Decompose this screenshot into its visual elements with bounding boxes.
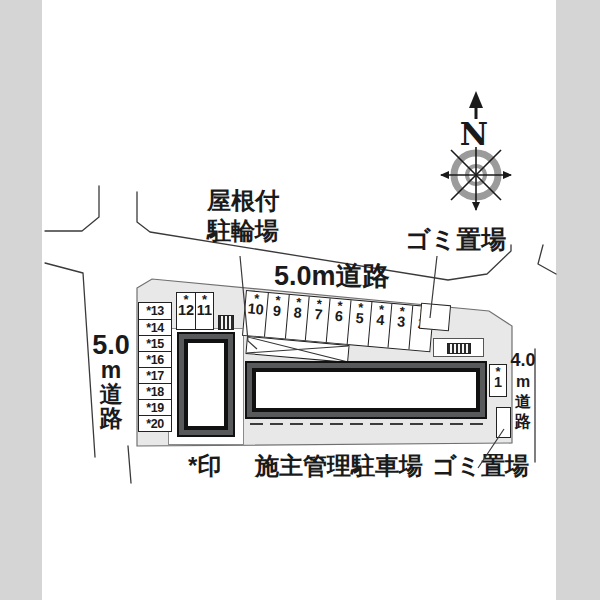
road-east-char: m (509, 372, 537, 392)
road-edge-line (45, 186, 99, 231)
road-east-char: 路 (509, 412, 537, 432)
parking-stall-1-cell: * 1 (490, 365, 506, 396)
owner-mark: * (202, 293, 207, 302)
owner-mark: * (495, 365, 500, 374)
bicycle-parking-label-line2: 駐輪場 (197, 216, 289, 246)
owner-mark: * (275, 294, 281, 303)
parking-stall-15: *15 (139, 335, 171, 351)
road-label-west: 5.0 m 道 路 (90, 331, 132, 431)
north-arrow-icon (469, 91, 483, 108)
owner-mark: * (379, 303, 385, 312)
right-margin-band (556, 0, 600, 600)
parking-stall-13: *13 (139, 303, 171, 319)
parking-stall-14: *14 (139, 319, 171, 335)
entrance-panel (433, 338, 484, 357)
owner-mark: * (183, 293, 188, 302)
owner-mark: * (337, 299, 343, 308)
owner-mark: * (296, 295, 302, 304)
road-label-east: 4.0 m 道 路 (509, 350, 537, 432)
road-east-char: 道 (509, 392, 537, 412)
road-west-char: 道 (90, 383, 132, 407)
road-label-north: 5.0m道路 (274, 258, 390, 294)
parking-stall-11: * 11 (195, 293, 213, 329)
owner-mark: * (358, 301, 364, 310)
building-main-interior (252, 368, 480, 412)
parking-stall-17: *17 (139, 367, 171, 383)
road-west-char: m (90, 359, 132, 383)
bicycle-parking-label-line1: 屋根付 (197, 186, 289, 216)
parking-stall-16: *16 (139, 351, 171, 367)
owner-mark: * (317, 297, 323, 306)
parking-pair-12-11: * 12 * 11 (176, 292, 214, 330)
garbage-area-north-box (419, 303, 451, 332)
road-edge-line (538, 245, 556, 274)
stairs-icon (218, 315, 234, 330)
parking-stall-1: * 1 (489, 364, 507, 397)
stairs-icon (447, 343, 471, 354)
legend-managed-parking: 施主管理駐車場 (255, 450, 423, 482)
bicycle-parking-label: 屋根付 駐輪場 (197, 186, 289, 246)
compass-rose: N (428, 85, 528, 215)
parking-stall-12: * 12 (177, 293, 195, 329)
owner-mark: * (254, 292, 260, 301)
parking-column-west: *13 *14 *15 *16 *17 *18 *19 *20 (138, 302, 172, 432)
road-west-width: 5.0 (90, 331, 132, 359)
left-margin-band (0, 0, 42, 600)
legend-mark: *印 (188, 450, 221, 482)
legend-garbage: ゴミ置場 (432, 450, 529, 482)
road-edge-line (128, 446, 131, 483)
road-east-width: 4.0 (509, 350, 537, 372)
parking-stall-18: *18 (139, 383, 171, 399)
parking-stall-20: *20 (139, 415, 171, 431)
garbage-label-north: ゴミ置場 (405, 223, 506, 256)
road-edge-line (45, 263, 95, 457)
building-main (245, 361, 487, 419)
owner-mark: * (399, 304, 405, 313)
compass-north-label: N (460, 116, 488, 152)
parking-stall-19: *19 (139, 399, 171, 415)
building-west-interior (184, 339, 228, 430)
building-west (177, 332, 235, 437)
road-west-char: 路 (90, 407, 132, 431)
